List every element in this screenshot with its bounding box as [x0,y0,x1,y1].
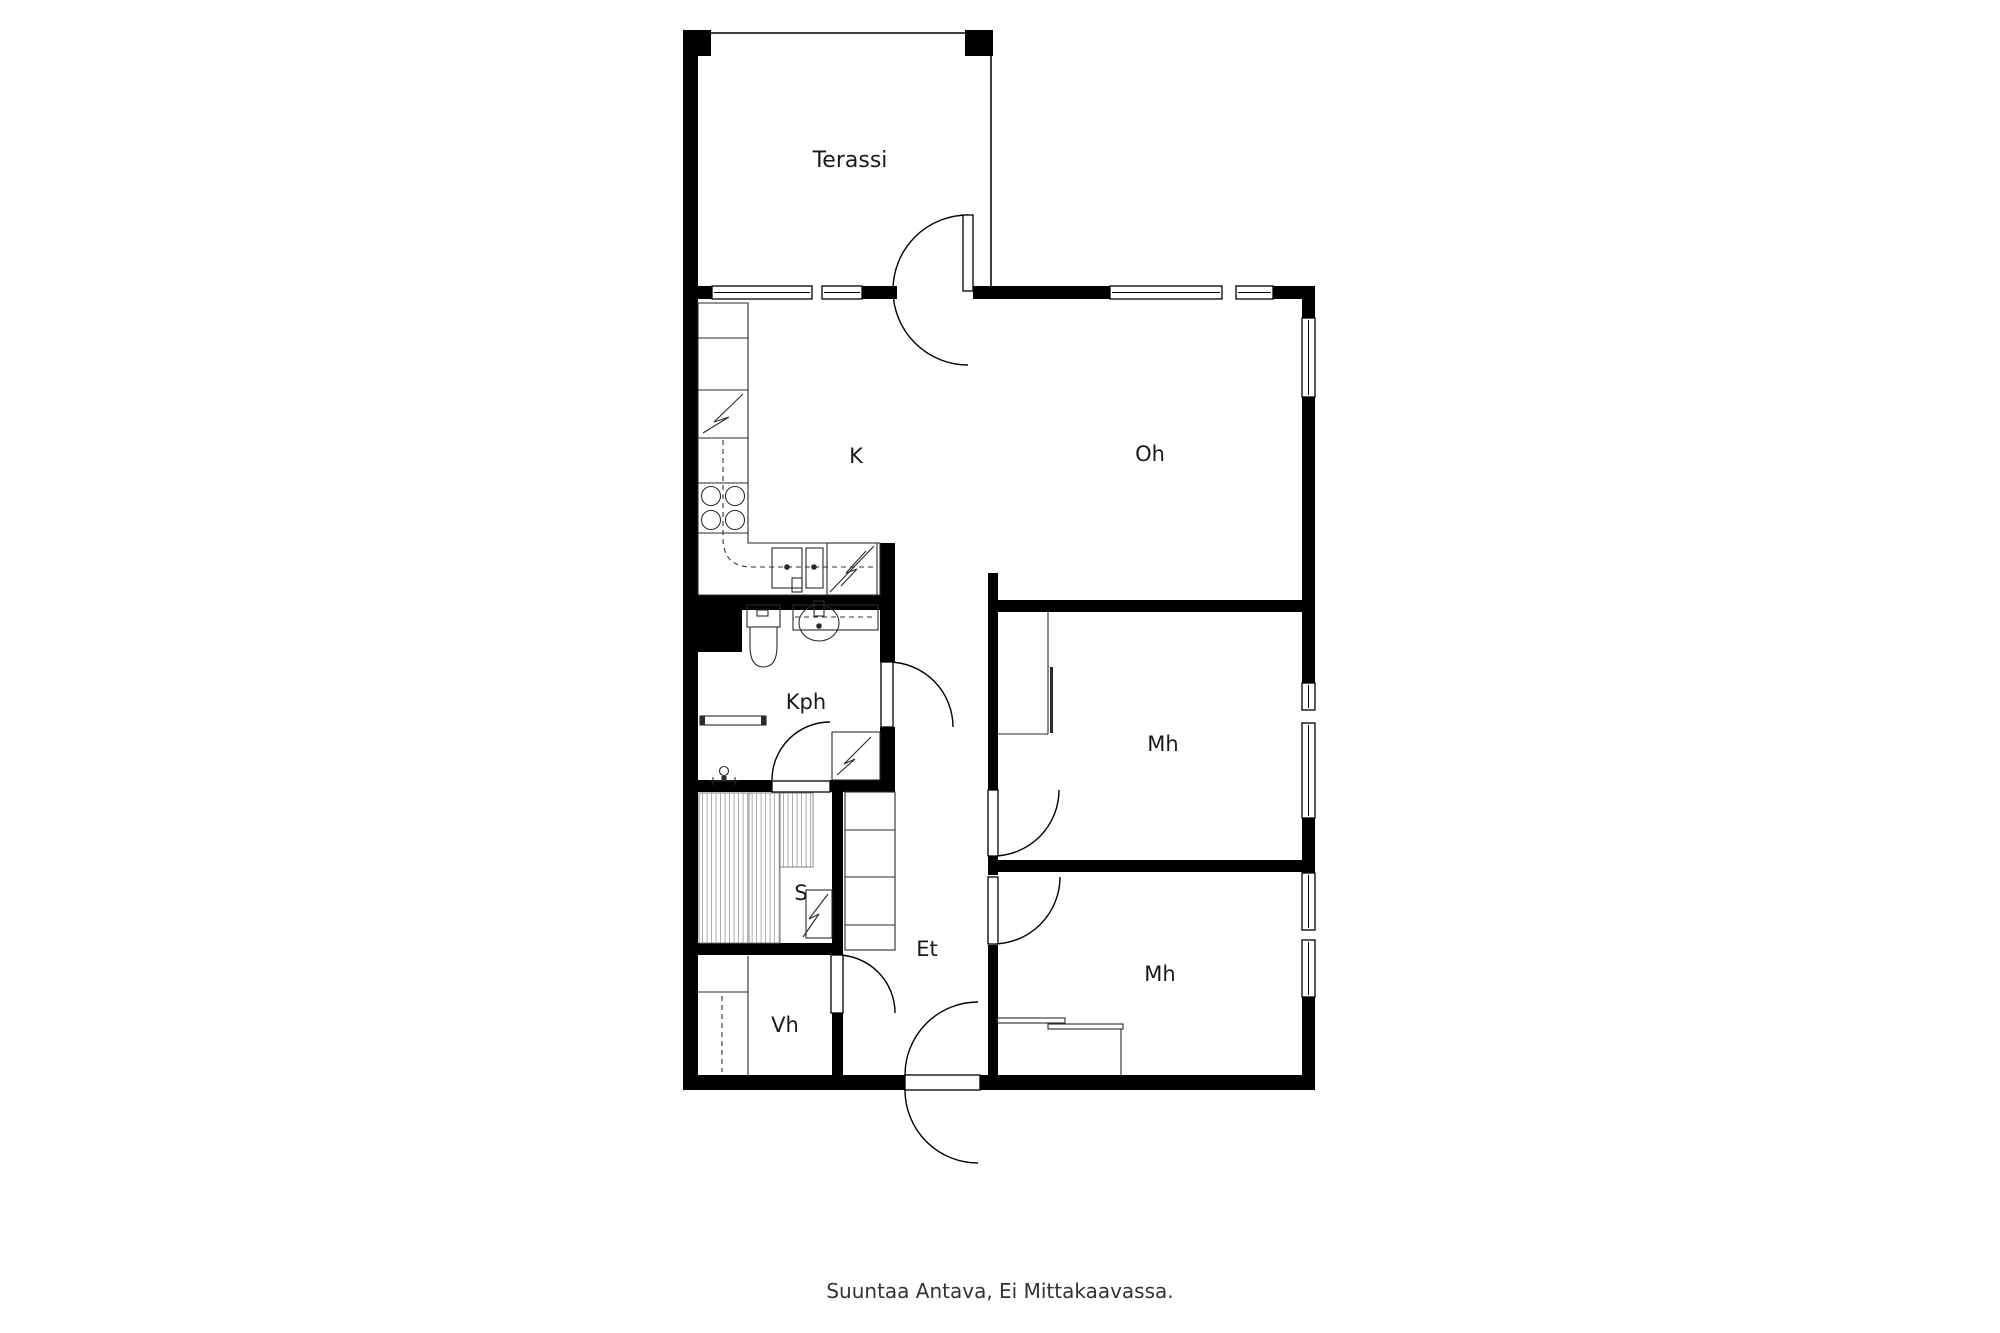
sauna-closet-wall [683,943,843,955]
bedroom1-door [988,790,1059,856]
floor-plan-drawing: Terassi K Oh Kph S Et Vh Mh Mh Suuntaa A… [0,0,2000,1333]
top-wall-segment [862,286,897,299]
floor-plan-page: Terassi K Oh Kph S Et Vh Mh Mh Suuntaa A… [0,0,2000,1333]
label-entry: Et [916,937,938,961]
bottom-wall-segment [683,1075,905,1090]
label-bedroom-2: Mh [1144,962,1175,986]
right-wall-segment [1302,397,1315,683]
label-terrace: Terassi [812,148,888,173]
vh-closet [698,956,748,1075]
sauna-bench [780,793,813,867]
entry-bedroom-wall-lower [988,945,998,1075]
bathroom-right-wall-upper [880,543,895,662]
label-living-room: Oh [1135,442,1165,466]
entrance-door [905,1002,980,1163]
label-sauna: S [794,881,807,905]
bathroom-sauna-wall-right [830,780,895,792]
top-wall-segment [683,286,712,299]
bedroom2-wardrobe [997,1018,1123,1075]
kitchen-bathroom-wall [683,595,895,610]
closet-right-wall [832,1013,843,1075]
livingroom-bedroom-wall [988,600,1315,612]
toilet [747,605,780,667]
terrace-corner-post-right [965,30,993,56]
sauna-fixtures [699,793,832,943]
kitchen-sink [772,548,823,592]
bedroom1-wardrobe [998,612,1053,734]
doors [772,215,1060,1163]
bathroom-door [881,662,953,727]
right-wall-segment [1302,286,1315,318]
sauna-door [772,722,830,792]
top-wall-segment [973,286,1110,299]
label-bedroom-1: Mh [1147,732,1178,756]
sauna-bench [749,793,780,943]
left-exterior-wall [683,30,698,1090]
water-heater [832,732,880,780]
bathroom-sauna-wall-left [683,780,772,792]
disclaimer-caption: Suuntaa Antava, Ei Mittakaavassa. [826,1279,1173,1303]
label-bathroom: Kph [786,690,826,714]
fridge-icon [703,394,743,433]
bedroom2-door [988,877,1060,944]
duct-shaft [698,610,742,652]
bottom-wall-segment [980,1075,1315,1090]
terrace-door [893,215,973,365]
label-closet: Vh [771,1013,799,1037]
closet-door [831,955,895,1013]
dishwasher [827,543,877,595]
sauna-bench [699,793,749,943]
towel-rail [700,716,766,725]
entry-cabinets [845,792,895,950]
label-kitchen: K [849,444,864,468]
bedroom-divider-wall [988,860,1315,872]
sauna-right-wall [832,792,843,955]
